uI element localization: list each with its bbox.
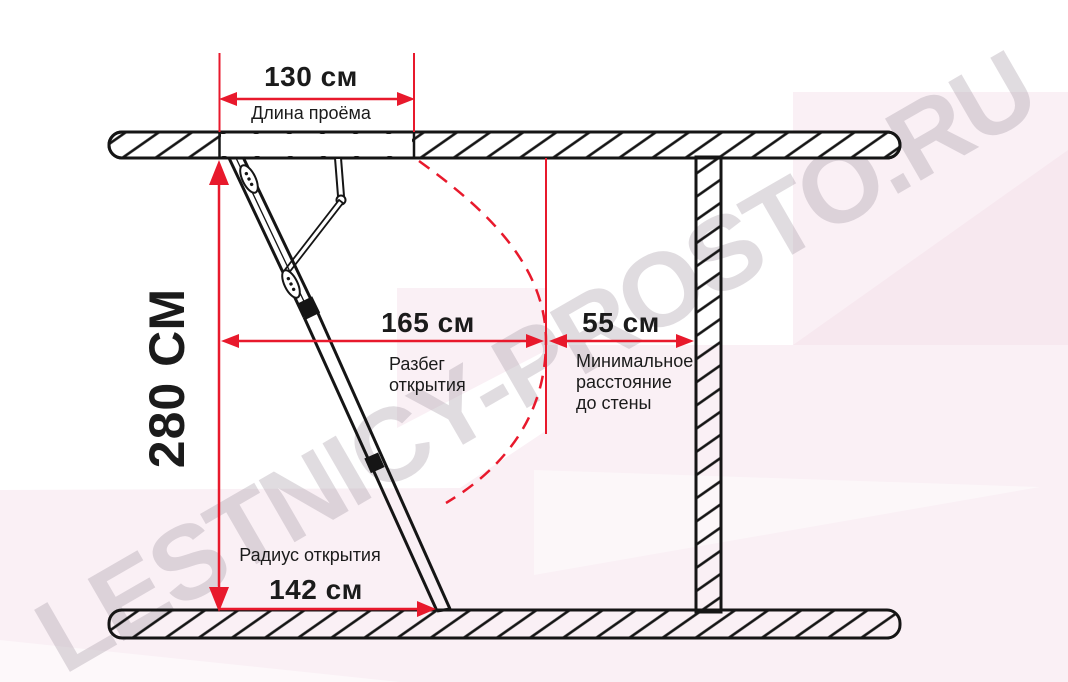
attic-ladder-dimensions-diagram: LESTNICY-PROSTO.RU [0,0,1068,682]
ladder-clamp [298,296,320,319]
dim-opening-span-value: 165 см [328,307,528,339]
ladder-upper-section [229,157,320,320]
dim-opening-span-label: Разбег открытия [389,354,466,396]
dim-opening-radius-value: 142 см [216,574,416,606]
dim-wall-distance-value: 55 см [521,307,721,339]
dim-opening-length-label: Длина проёма [216,103,406,124]
dim-wall-distance-label: Минимальное расстояние до стены [576,351,693,414]
dim-opening-radius-label: Радиус открытия [210,545,410,566]
hatch-door [335,158,346,205]
ceiling-opening [221,134,412,156]
dim-room-height-value: 280 СМ [138,288,196,468]
ceiling [109,132,900,158]
floor [109,610,900,638]
dim-opening-length-value: 130 см [206,61,416,93]
wall [696,157,721,612]
